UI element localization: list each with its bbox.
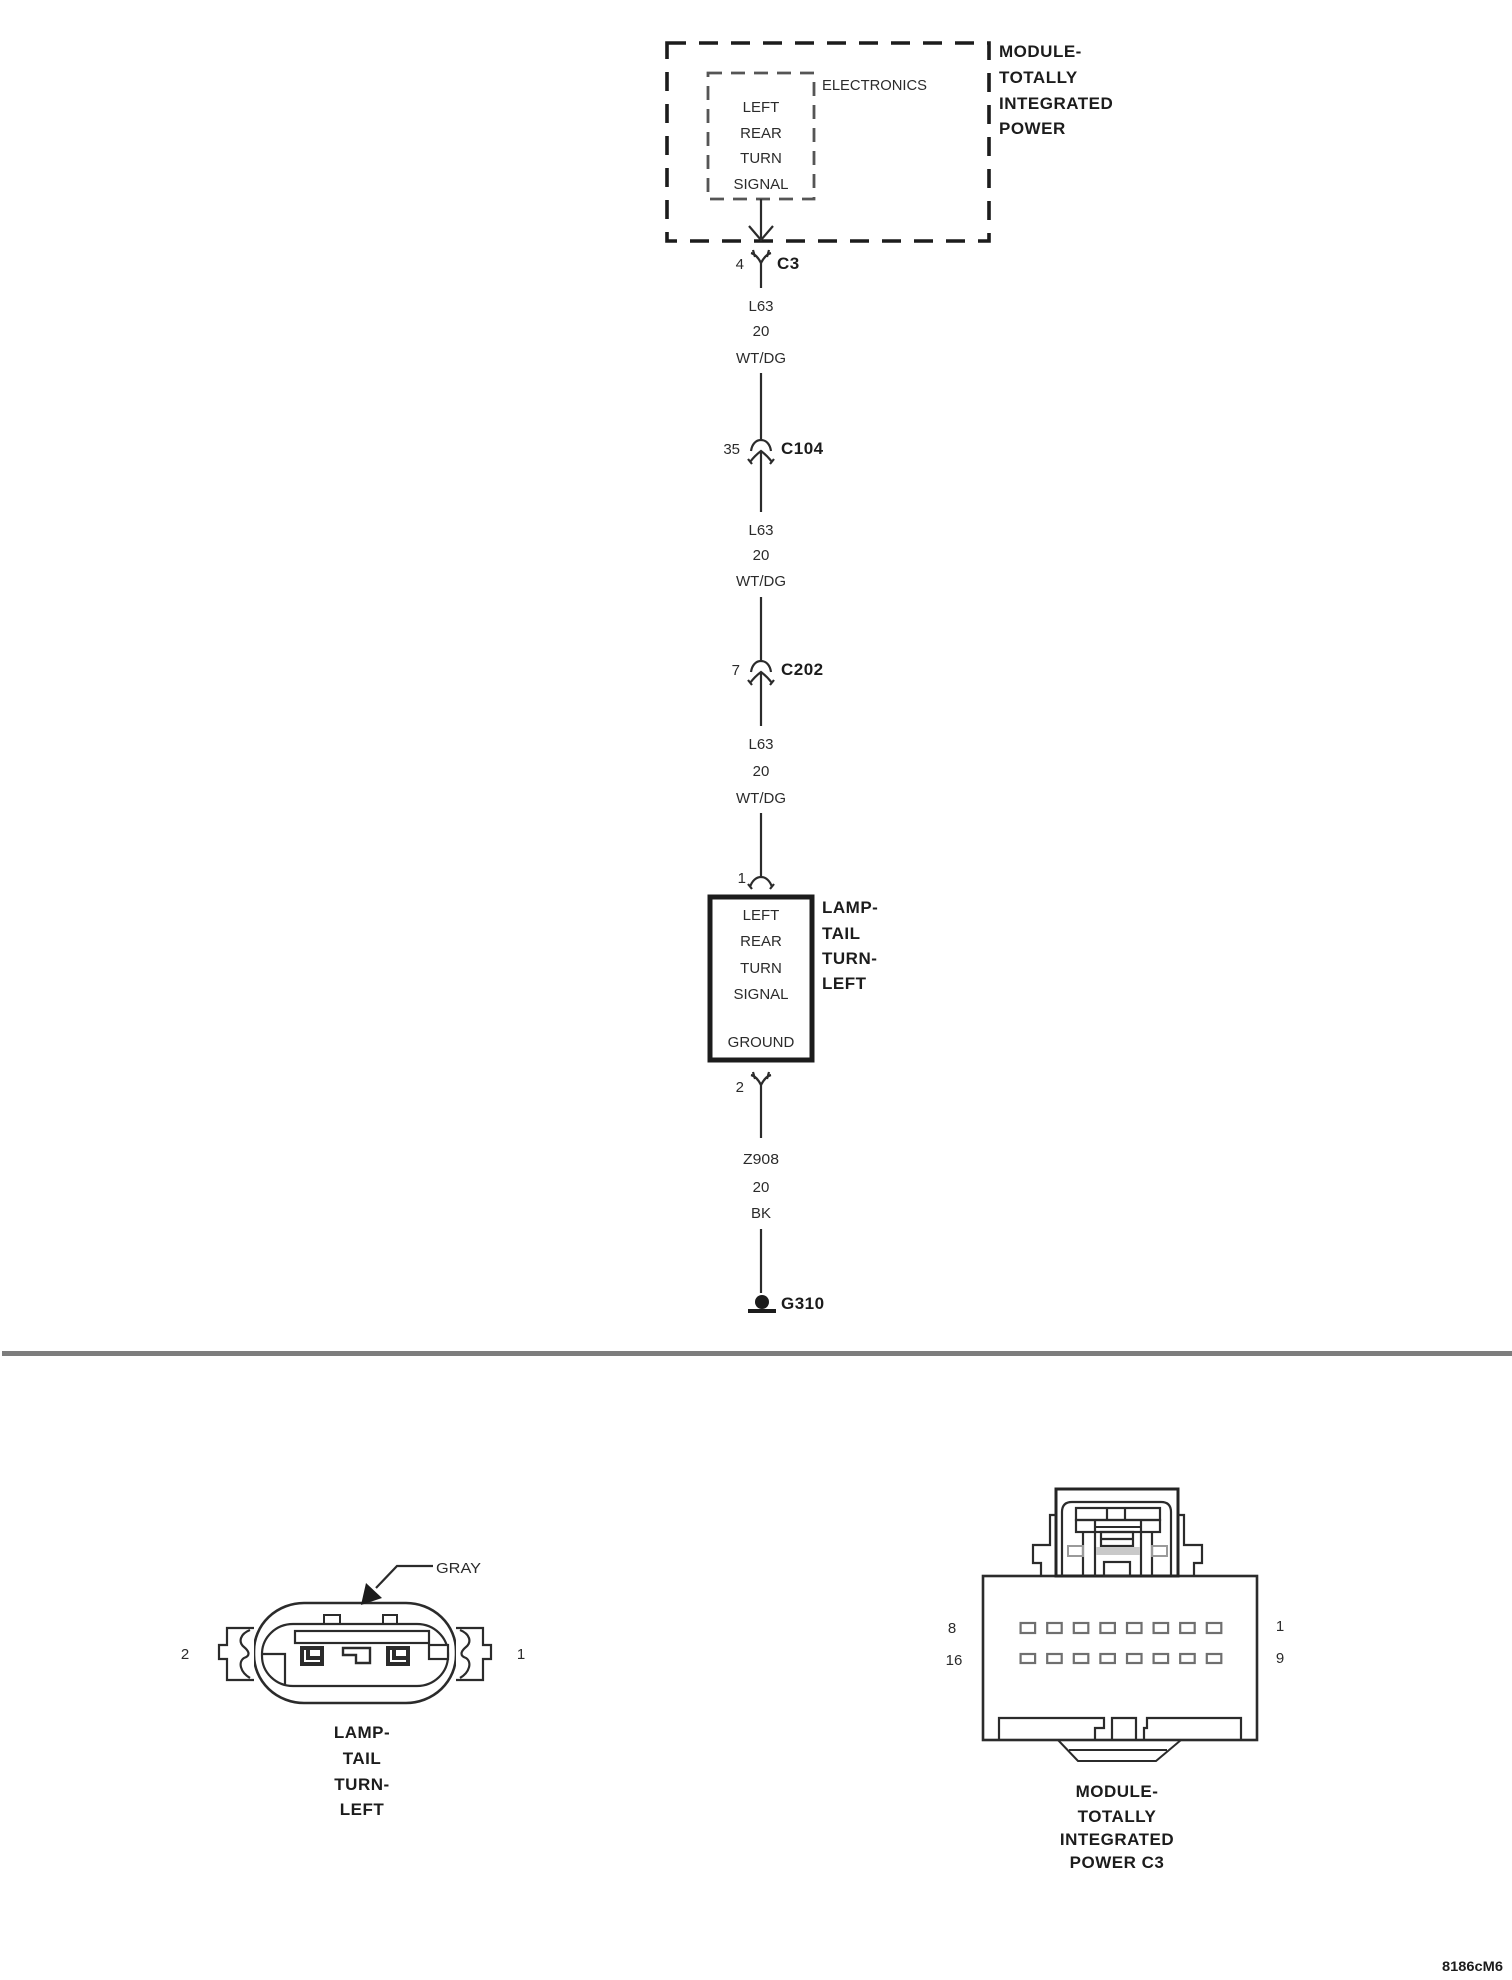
svg-text:TURN: TURN [740,960,782,977]
svg-text:BK: BK [751,1205,771,1222]
svg-text:TOTALLY: TOTALLY [999,68,1078,87]
svg-text:1: 1 [517,1646,525,1663]
svg-text:INTEGRATED: INTEGRATED [999,94,1113,113]
svg-text:C3: C3 [777,254,800,273]
svg-text:SIGNAL: SIGNAL [733,176,788,193]
svg-text:2: 2 [736,1079,744,1096]
svg-text:REAR: REAR [740,125,782,142]
svg-text:Z908: Z908 [743,1151,779,1168]
svg-text:35: 35 [723,441,740,458]
svg-text:2: 2 [181,1646,189,1663]
svg-text:POWER C3: POWER C3 [1070,1853,1165,1872]
svg-text:TURN: TURN [740,150,782,167]
svg-text:20: 20 [753,323,770,340]
svg-text:LEFT: LEFT [743,99,780,116]
svg-text:LEFT: LEFT [340,1800,385,1819]
svg-text:LEFT: LEFT [743,907,780,924]
svg-text:SIGNAL: SIGNAL [733,986,788,1003]
svg-text:L63: L63 [748,298,773,315]
svg-text:WT/DG: WT/DG [736,350,786,367]
svg-text:C202: C202 [781,660,824,679]
svg-text:1: 1 [1276,1618,1284,1635]
svg-text:WT/DG: WT/DG [736,790,786,807]
svg-text:TAIL: TAIL [343,1749,382,1768]
svg-text:INTEGRATED: INTEGRATED [1060,1830,1174,1849]
svg-text:20: 20 [753,1179,770,1196]
svg-text:MODULE-: MODULE- [1076,1782,1159,1801]
svg-text:MODULE-: MODULE- [999,42,1082,61]
svg-text:REAR: REAR [740,933,782,950]
svg-text:TOTALLY: TOTALLY [1078,1807,1157,1826]
svg-text:TURN-: TURN- [334,1775,389,1794]
svg-text:7: 7 [732,662,740,679]
svg-text:ELECTRONICS: ELECTRONICS [822,77,927,94]
svg-text:4: 4 [736,256,744,273]
svg-text:L63: L63 [748,736,773,753]
svg-text:16: 16 [946,1652,963,1669]
svg-text:LEFT: LEFT [822,974,867,993]
svg-text:GRAY: GRAY [436,1560,481,1577]
svg-text:20: 20 [753,547,770,564]
svg-text:1: 1 [738,870,746,887]
svg-text:C104: C104 [781,439,824,458]
svg-text:LAMP-: LAMP- [822,898,878,917]
svg-text:WT/DG: WT/DG [736,573,786,590]
svg-text:8186cM6: 8186cM6 [1442,1958,1503,1974]
svg-text:TURN-: TURN- [822,949,877,968]
svg-text:9: 9 [1276,1650,1284,1667]
svg-text:POWER: POWER [999,119,1066,138]
svg-text:TAIL: TAIL [822,924,861,943]
svg-text:20: 20 [753,763,770,780]
svg-text:L63: L63 [748,522,773,539]
svg-text:G310: G310 [781,1294,825,1313]
svg-text:8: 8 [948,1620,956,1637]
svg-text:GROUND: GROUND [728,1034,795,1051]
svg-text:LAMP-: LAMP- [334,1723,390,1742]
